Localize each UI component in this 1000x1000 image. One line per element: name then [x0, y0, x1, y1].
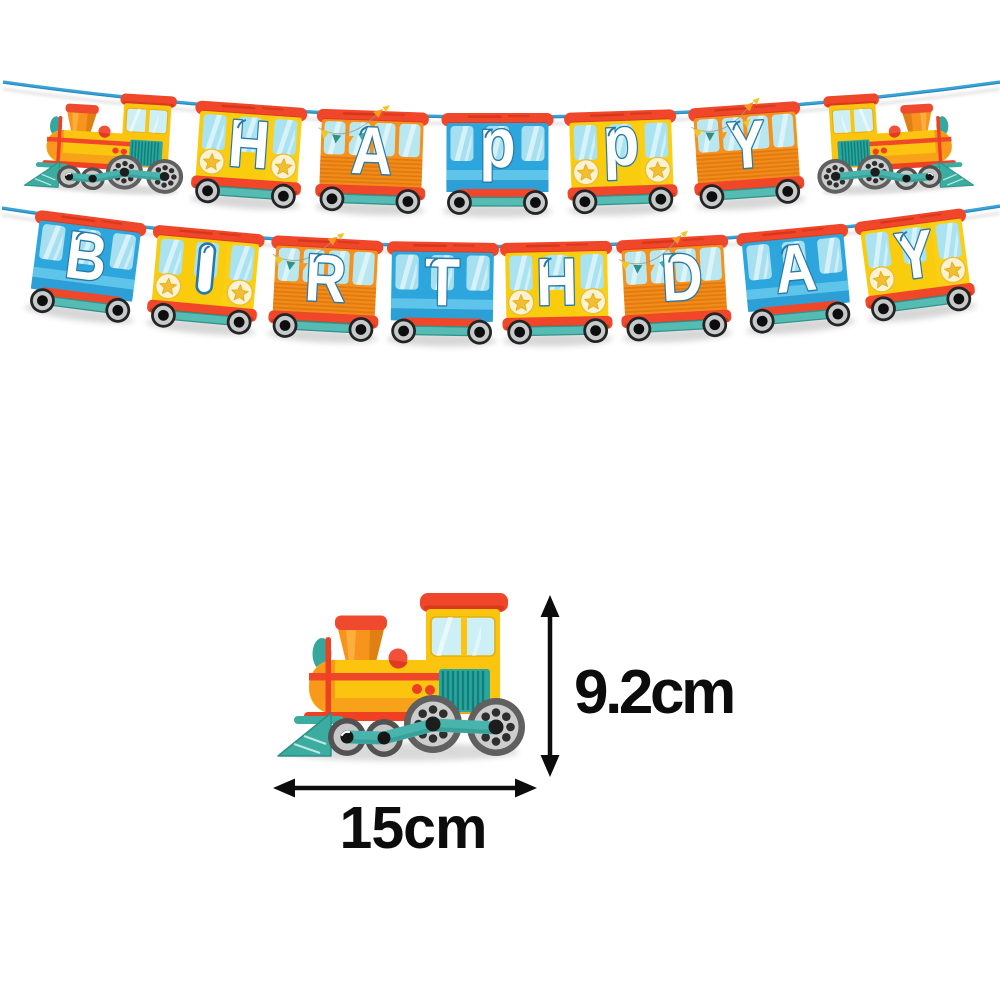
svg-text:H: H: [226, 106, 272, 183]
svg-text:p: p: [601, 101, 640, 181]
svg-text:Y: Y: [725, 107, 768, 184]
svg-text:D: D: [659, 240, 704, 317]
svg-text:A: A: [350, 114, 394, 190]
svg-text:9.2cm: 9.2cm: [574, 658, 733, 727]
svg-text:R: R: [303, 241, 348, 317]
svg-text:H: H: [535, 245, 578, 320]
svg-text:A: A: [772, 230, 820, 308]
svg-text:p: p: [479, 103, 515, 182]
svg-text:T: T: [424, 246, 460, 321]
svg-text:15cm: 15cm: [340, 795, 487, 861]
